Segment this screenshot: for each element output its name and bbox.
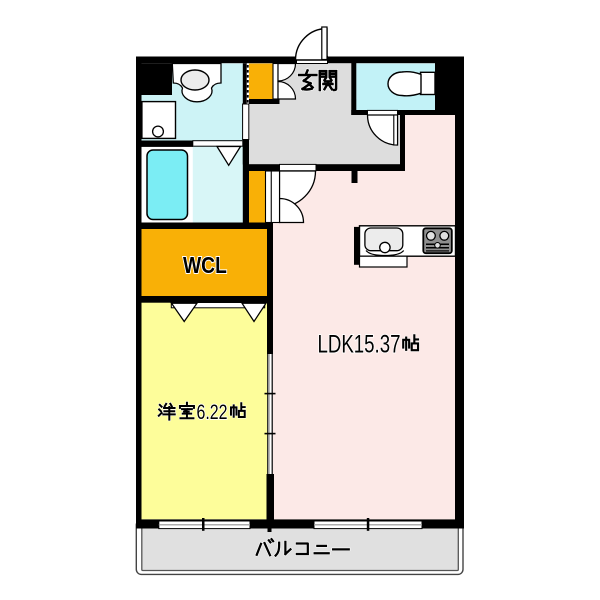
- svg-text:6.22: 6.22: [197, 400, 228, 424]
- svg-text:WCL: WCL: [183, 252, 227, 278]
- svg-text:LDK15.37: LDK15.37: [318, 331, 401, 359]
